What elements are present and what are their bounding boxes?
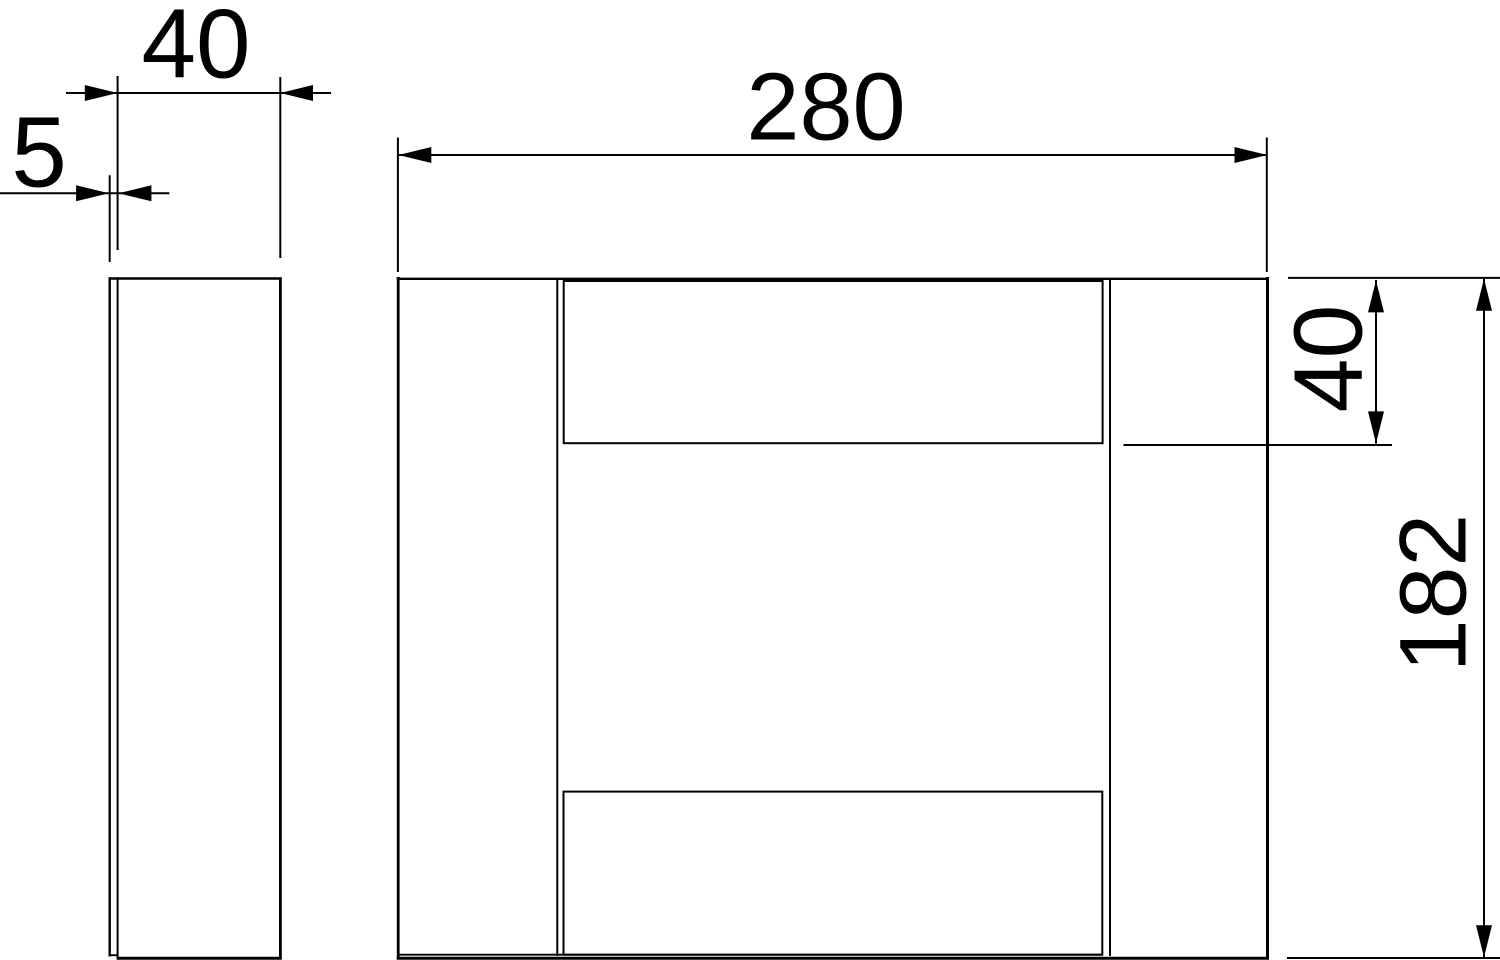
svg-text:182: 182 [1381,514,1487,673]
svg-text:40: 40 [141,0,250,99]
svg-text:40: 40 [1274,305,1383,413]
svg-text:5: 5 [11,97,67,209]
svg-text:280: 280 [746,55,905,161]
